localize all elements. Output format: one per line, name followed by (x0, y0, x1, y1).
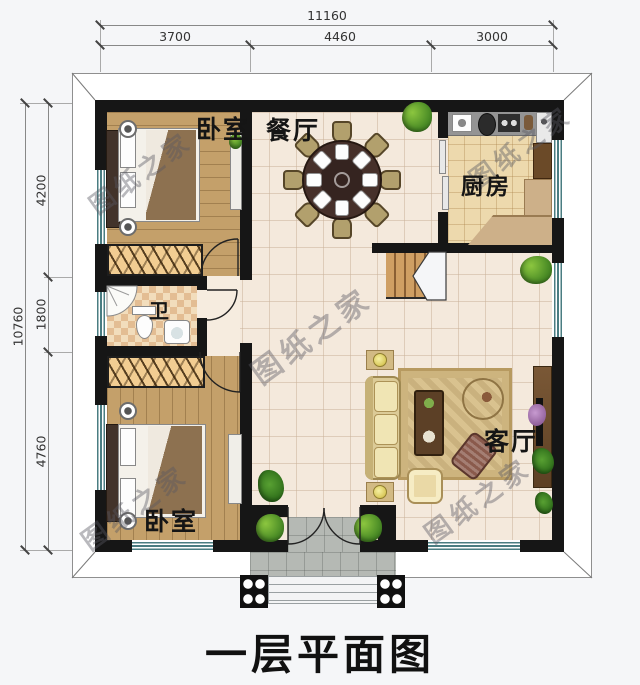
door-arc-bedroom-top (201, 239, 238, 276)
stair-break-line (413, 252, 446, 300)
floor-plan-canvas: 11160 3700 4460 3000 10760 4200 1800 476… (0, 0, 640, 685)
page-title: 一层平面图 (0, 621, 640, 682)
room-label-bedroom-top: 卧室 (196, 110, 250, 146)
entry-door-arc-right (324, 508, 360, 544)
entry-door-arc-left (288, 508, 324, 544)
room-label-bedroom-bottom: 卧室 (144, 502, 198, 538)
room-label-bath: 卫 (149, 295, 171, 324)
shower-icon (107, 286, 137, 316)
room-label-living: 客厅 (484, 422, 538, 458)
door-arc-bathroom (207, 290, 237, 320)
room-label-kitchen: 厨房 (461, 167, 511, 201)
room-label-dining: 餐厅 (266, 111, 320, 147)
door-arc-bedroom-bottom (200, 352, 240, 392)
